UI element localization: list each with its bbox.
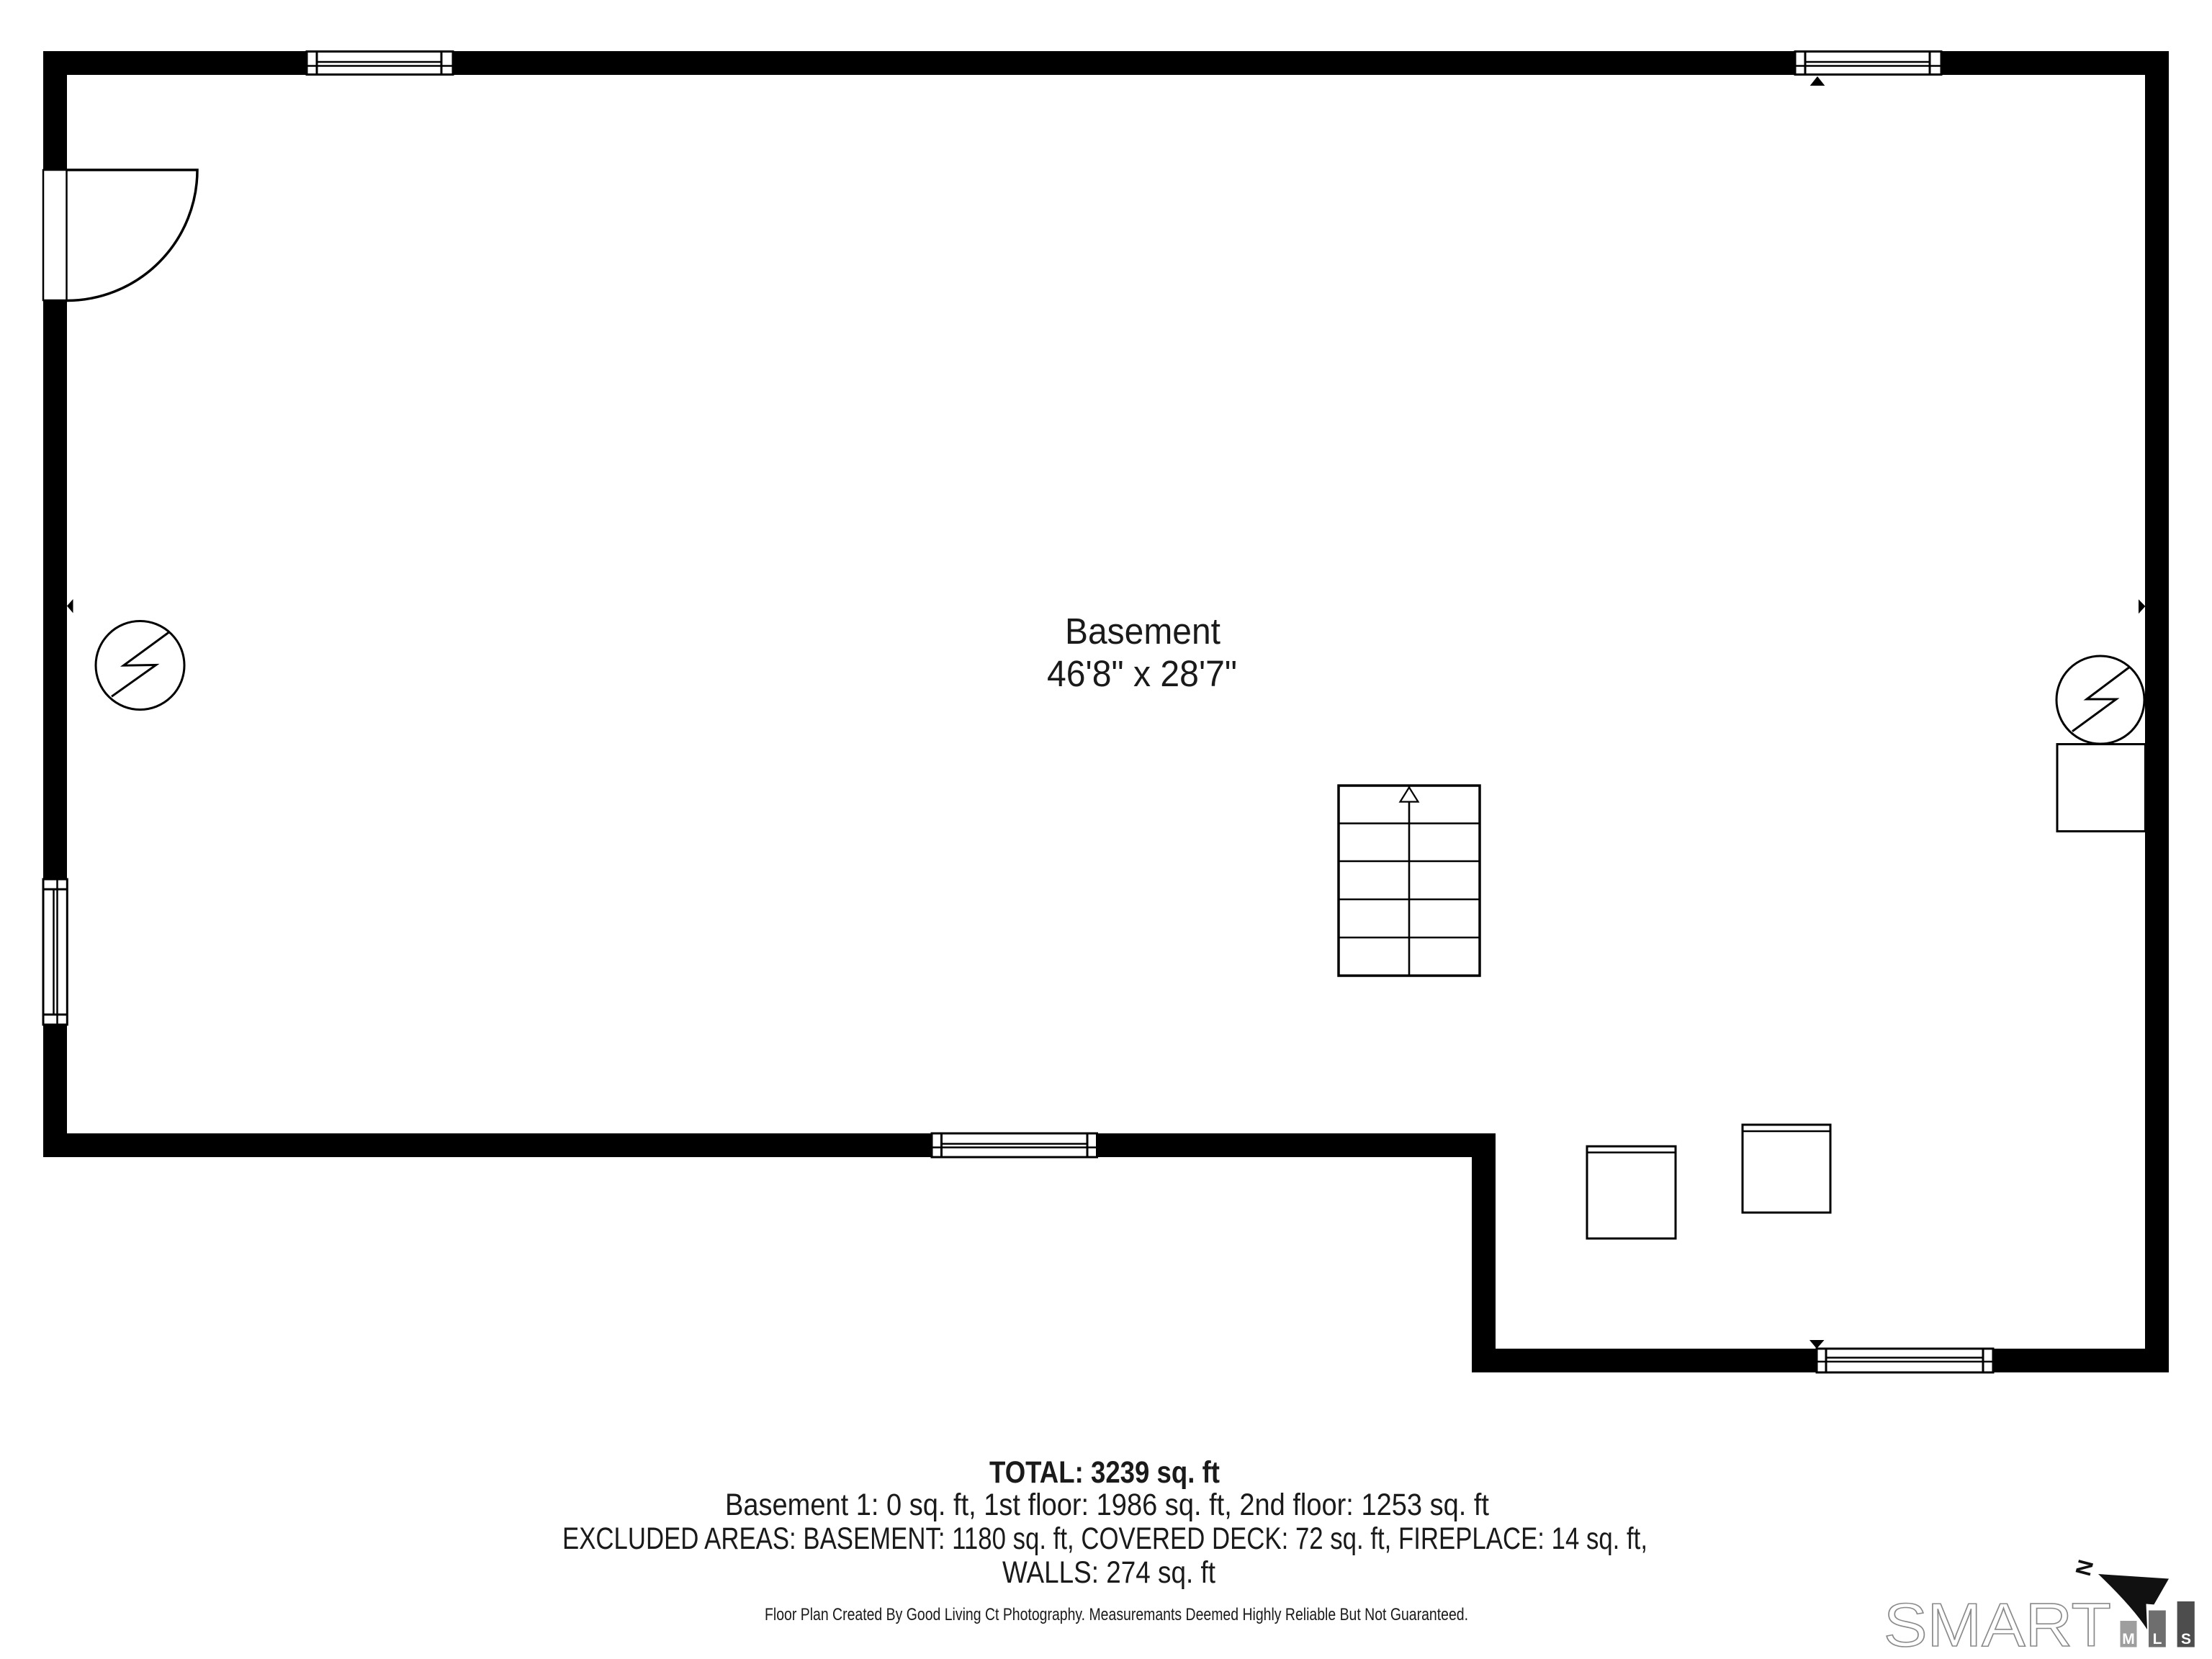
svg-text:TOTAL: 3239 sq. ft: TOTAL: 3239 sq. ft	[989, 1455, 1220, 1490]
svg-text:SMART: SMART	[1884, 1591, 2111, 1659]
svg-text:S: S	[2181, 1631, 2191, 1647]
svg-text:EXCLUDED AREAS: BASEMENT: 1180: EXCLUDED AREAS: BASEMENT: 1180 sq. ft, C…	[562, 1521, 1647, 1556]
svg-text:Floor Plan Created By Good Liv: Floor Plan Created By Good Living Ct Pho…	[765, 1605, 1468, 1624]
svg-text:WALLS: 274 sq. ft: WALLS: 274 sq. ft	[1002, 1555, 1215, 1590]
svg-text:L: L	[2153, 1631, 2162, 1647]
svg-text:N: N	[2070, 1557, 2097, 1578]
svg-text:Basement: Basement	[1065, 611, 1220, 652]
svg-text:Basement 1: 0 sq. ft, 1st floo: Basement 1: 0 sq. ft, 1st floor: 1986 sq…	[725, 1488, 1489, 1522]
svg-text:46'8" x 28'7": 46'8" x 28'7"	[1047, 653, 1237, 694]
svg-text:M: M	[2122, 1631, 2135, 1647]
